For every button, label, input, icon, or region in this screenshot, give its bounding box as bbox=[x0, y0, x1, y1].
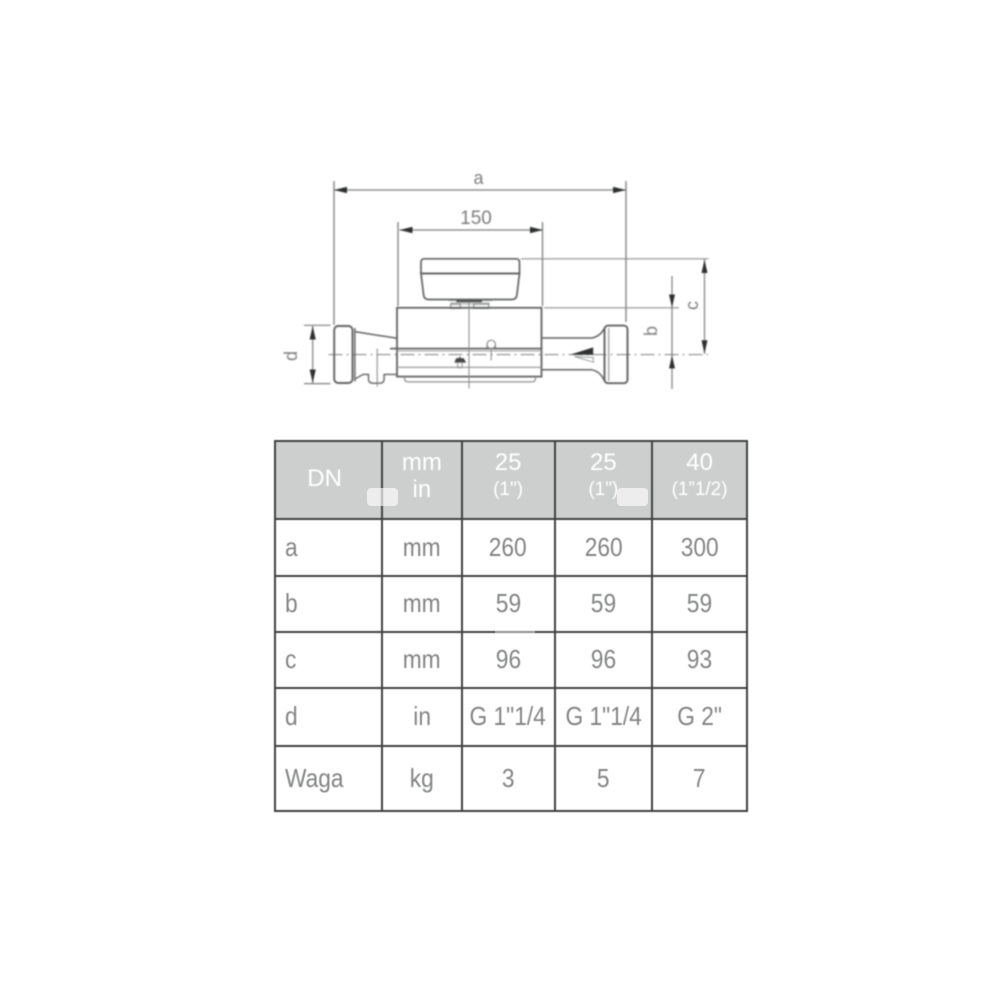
svg-text:d: d bbox=[281, 351, 301, 361]
svg-text:c: c bbox=[682, 301, 702, 310]
svg-text:150: 150 bbox=[460, 208, 492, 229]
svg-text:a: a bbox=[473, 168, 484, 188]
svg-text:b: b bbox=[641, 326, 661, 336]
